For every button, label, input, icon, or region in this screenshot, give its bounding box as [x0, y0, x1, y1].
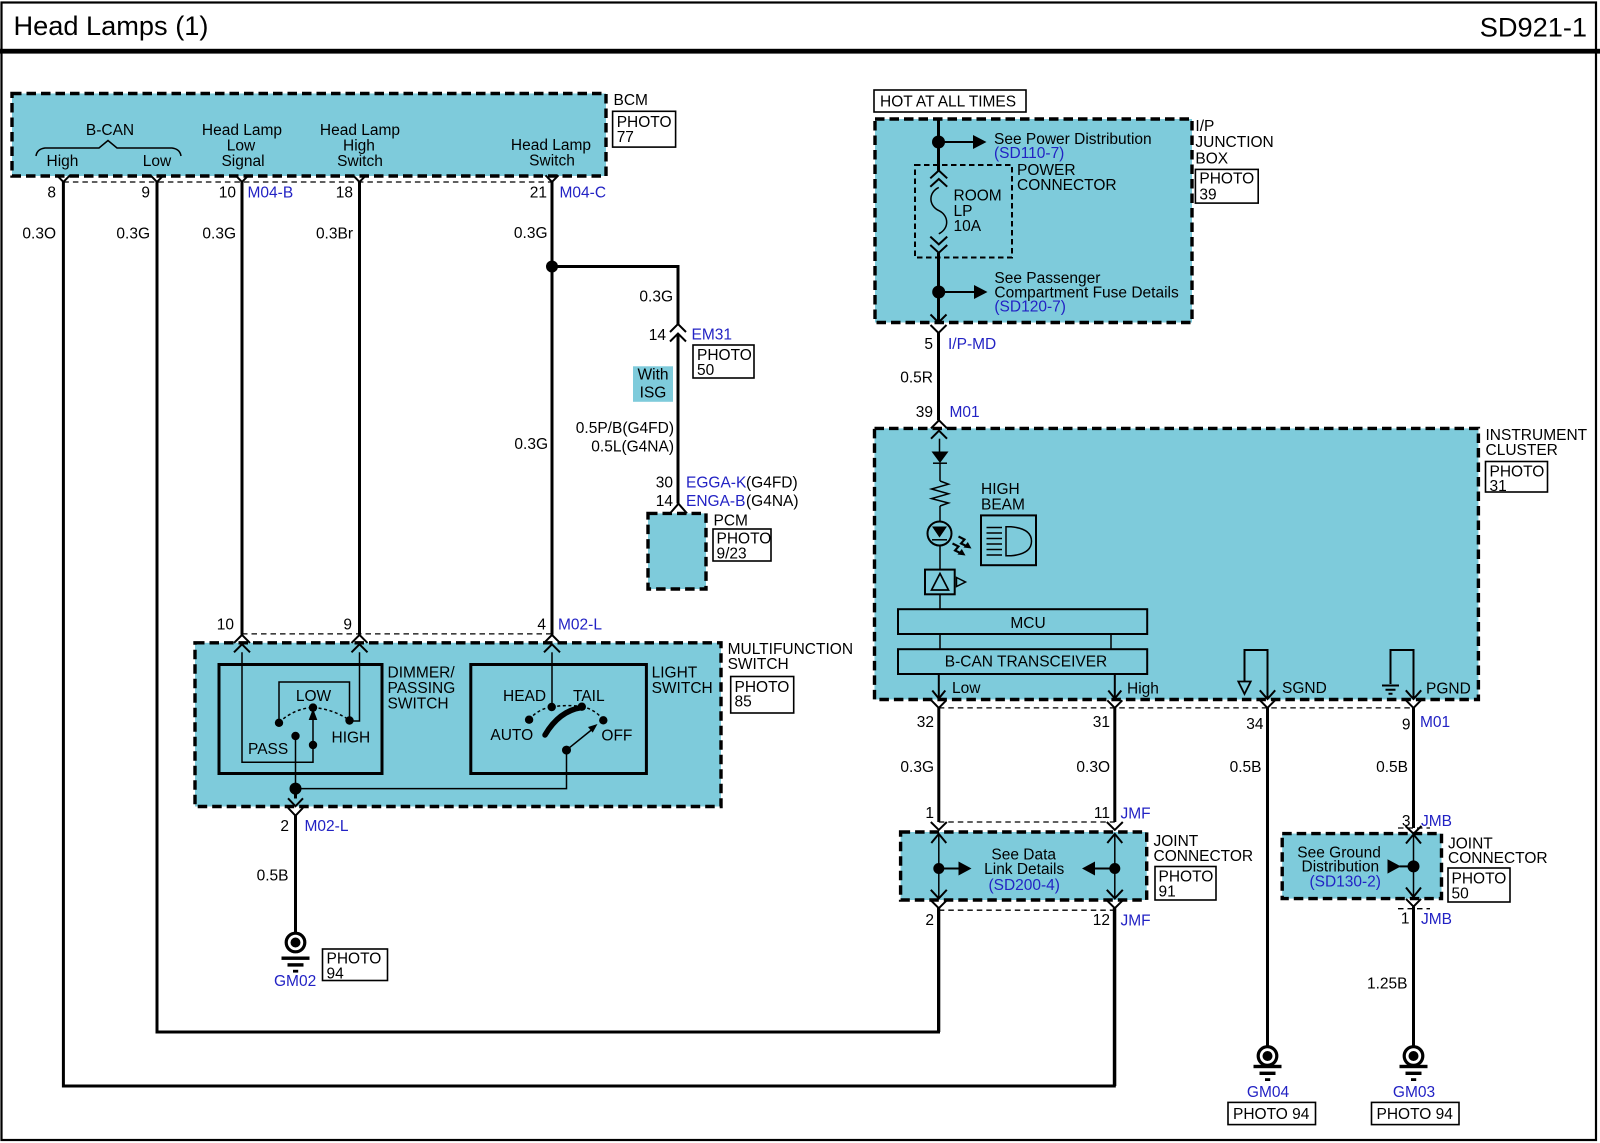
svg-text:34: 34	[1246, 716, 1264, 733]
svg-text:High: High	[1127, 681, 1159, 698]
svg-text:30: 30	[656, 475, 674, 492]
svg-text:10A: 10A	[954, 218, 982, 235]
svg-text:12: 12	[1093, 912, 1110, 929]
svg-text:ENGA-B: ENGA-B	[686, 493, 745, 510]
svg-text:(SD130-2): (SD130-2)	[1309, 874, 1381, 891]
svg-text:I/P: I/P	[1195, 118, 1214, 135]
svg-text:21: 21	[530, 185, 547, 202]
svg-text:HOT AT ALL TIMES: HOT AT ALL TIMES	[880, 94, 1016, 111]
svg-text:Link Details: Link Details	[984, 861, 1064, 878]
svg-text:Head Lamps (1): Head Lamps (1)	[14, 10, 209, 41]
svg-text:With: With	[638, 367, 669, 384]
svg-text:14: 14	[656, 493, 674, 510]
svg-text:1: 1	[925, 805, 934, 822]
svg-text:9: 9	[1402, 717, 1411, 734]
svg-text:Low: Low	[952, 680, 981, 697]
svg-text:JMB: JMB	[1421, 813, 1452, 830]
svg-text:HIGH: HIGH	[332, 730, 371, 747]
svg-text:PHOTO 94: PHOTO 94	[1233, 1106, 1310, 1123]
svg-text:0.5R: 0.5R	[900, 370, 933, 387]
svg-text:PHOTO 94: PHOTO 94	[1377, 1106, 1454, 1123]
svg-text:OFF: OFF	[601, 728, 632, 745]
svg-text:High: High	[343, 138, 375, 155]
svg-text:91: 91	[1159, 884, 1176, 901]
svg-text:GM04: GM04	[1247, 1084, 1290, 1101]
svg-text:5: 5	[924, 336, 933, 353]
svg-text:0.5B: 0.5B	[1376, 759, 1408, 776]
svg-text:GM02: GM02	[274, 973, 316, 990]
svg-text:CONNECTOR: CONNECTOR	[1017, 177, 1117, 194]
svg-text:(SD200-4): (SD200-4)	[988, 877, 1060, 894]
svg-text:LOW: LOW	[296, 688, 332, 705]
svg-text:JMF: JMF	[1121, 806, 1151, 823]
svg-text:11: 11	[1094, 805, 1110, 822]
svg-text:9/23: 9/23	[717, 546, 747, 563]
svg-text:SGND: SGND	[1282, 680, 1327, 697]
svg-text:M01: M01	[950, 404, 980, 421]
svg-text:JMB: JMB	[1421, 911, 1452, 928]
svg-text:94: 94	[327, 966, 345, 983]
svg-text:M04-C: M04-C	[560, 185, 607, 202]
svg-text:Switch: Switch	[337, 153, 383, 170]
svg-text:10: 10	[219, 185, 237, 202]
svg-text:0.5B: 0.5B	[1230, 759, 1262, 776]
svg-text:9: 9	[343, 617, 352, 634]
svg-text:GM03: GM03	[1393, 1084, 1435, 1101]
svg-text:(G4FD): (G4FD)	[746, 475, 798, 492]
svg-text:High: High	[47, 153, 79, 170]
svg-text:31: 31	[1490, 478, 1507, 495]
svg-text:TAIL: TAIL	[573, 688, 605, 705]
svg-text:SD921-1: SD921-1	[1480, 11, 1587, 42]
svg-text:EM31: EM31	[692, 327, 733, 344]
svg-text:0.3G: 0.3G	[639, 289, 673, 306]
svg-text:85: 85	[735, 694, 752, 711]
svg-text:HEAD: HEAD	[503, 688, 546, 705]
svg-text:0.5B: 0.5B	[257, 868, 289, 885]
svg-text:BCM: BCM	[614, 92, 648, 109]
svg-text:2: 2	[925, 912, 934, 929]
svg-text:4: 4	[537, 617, 546, 634]
svg-text:HIGH: HIGH	[981, 481, 1020, 498]
svg-text:CLUSTER: CLUSTER	[1486, 442, 1558, 459]
svg-text:M02-L: M02-L	[305, 818, 349, 835]
svg-text:Switch: Switch	[529, 153, 575, 170]
svg-text:(SD110-7): (SD110-7)	[994, 145, 1064, 162]
svg-text:(G4NA): (G4NA)	[746, 493, 799, 510]
svg-text:BEAM: BEAM	[981, 497, 1025, 514]
svg-text:32: 32	[917, 714, 934, 731]
svg-text:B-CAN: B-CAN	[86, 122, 134, 139]
svg-text:Head Lamp: Head Lamp	[202, 122, 282, 139]
svg-text:PHOTO: PHOTO	[1199, 171, 1254, 188]
svg-text:0.3G: 0.3G	[514, 225, 548, 242]
svg-text:2: 2	[280, 818, 289, 835]
svg-text:JMF: JMF	[1121, 913, 1151, 930]
svg-text:Low: Low	[227, 138, 256, 155]
svg-text:50: 50	[1452, 886, 1470, 903]
svg-text:0.5L(G4NA): 0.5L(G4NA)	[591, 439, 674, 456]
svg-text:39: 39	[1199, 186, 1216, 203]
svg-text:JUNCTION: JUNCTION	[1195, 134, 1273, 151]
svg-text:EGGA-K: EGGA-K	[686, 475, 747, 492]
svg-text:14: 14	[649, 327, 667, 344]
svg-text:9: 9	[141, 185, 150, 202]
svg-text:I/P-MD: I/P-MD	[948, 336, 996, 353]
svg-text:0.3G: 0.3G	[900, 759, 934, 776]
svg-text:39: 39	[916, 404, 933, 421]
svg-text:0.5P/B(G4FD): 0.5P/B(G4FD)	[576, 420, 674, 437]
svg-text:ISG: ISG	[640, 385, 667, 402]
svg-text:8: 8	[47, 185, 56, 202]
svg-text:1: 1	[1401, 911, 1410, 928]
svg-text:0.3O: 0.3O	[22, 226, 56, 243]
svg-text:BOX: BOX	[1195, 150, 1228, 167]
svg-text:0.3G: 0.3G	[514, 436, 548, 453]
svg-text:CONNECTOR: CONNECTOR	[1154, 848, 1254, 865]
svg-text:0.3Br: 0.3Br	[316, 226, 353, 243]
svg-text:AUTO: AUTO	[490, 727, 533, 744]
svg-text:PASS: PASS	[248, 741, 288, 758]
svg-text:1.25B: 1.25B	[1367, 976, 1408, 993]
svg-text:Low: Low	[143, 153, 172, 170]
svg-text:SWITCH: SWITCH	[652, 680, 713, 697]
svg-text:31: 31	[1093, 714, 1110, 731]
svg-text:M01: M01	[1420, 714, 1450, 731]
svg-text:0.3G: 0.3G	[116, 226, 150, 243]
svg-text:Signal: Signal	[221, 153, 264, 170]
svg-text:18: 18	[336, 185, 353, 202]
svg-text:M02-L: M02-L	[558, 617, 602, 634]
svg-text:M04-B: M04-B	[248, 185, 294, 202]
svg-text:0.3O: 0.3O	[1076, 759, 1110, 776]
svg-text:ROOM: ROOM	[954, 188, 1002, 205]
svg-text:B-CAN TRANSCEIVER: B-CAN TRANSCEIVER	[945, 654, 1108, 671]
svg-text:Head Lamp: Head Lamp	[511, 137, 591, 154]
svg-text:(SD120-7): (SD120-7)	[994, 298, 1066, 315]
svg-text:PCM: PCM	[714, 513, 748, 530]
svg-text:CONNECTOR: CONNECTOR	[1448, 850, 1548, 867]
svg-text:Head Lamp: Head Lamp	[320, 122, 400, 139]
svg-text:10: 10	[217, 617, 235, 634]
svg-text:SWITCH: SWITCH	[728, 656, 789, 673]
svg-text:0.3G: 0.3G	[202, 226, 236, 243]
svg-text:PGND: PGND	[1426, 681, 1471, 698]
svg-text:SWITCH: SWITCH	[388, 695, 449, 712]
svg-text:50: 50	[697, 362, 715, 379]
svg-text:MCU: MCU	[1010, 615, 1045, 632]
svg-text:77: 77	[617, 129, 634, 146]
